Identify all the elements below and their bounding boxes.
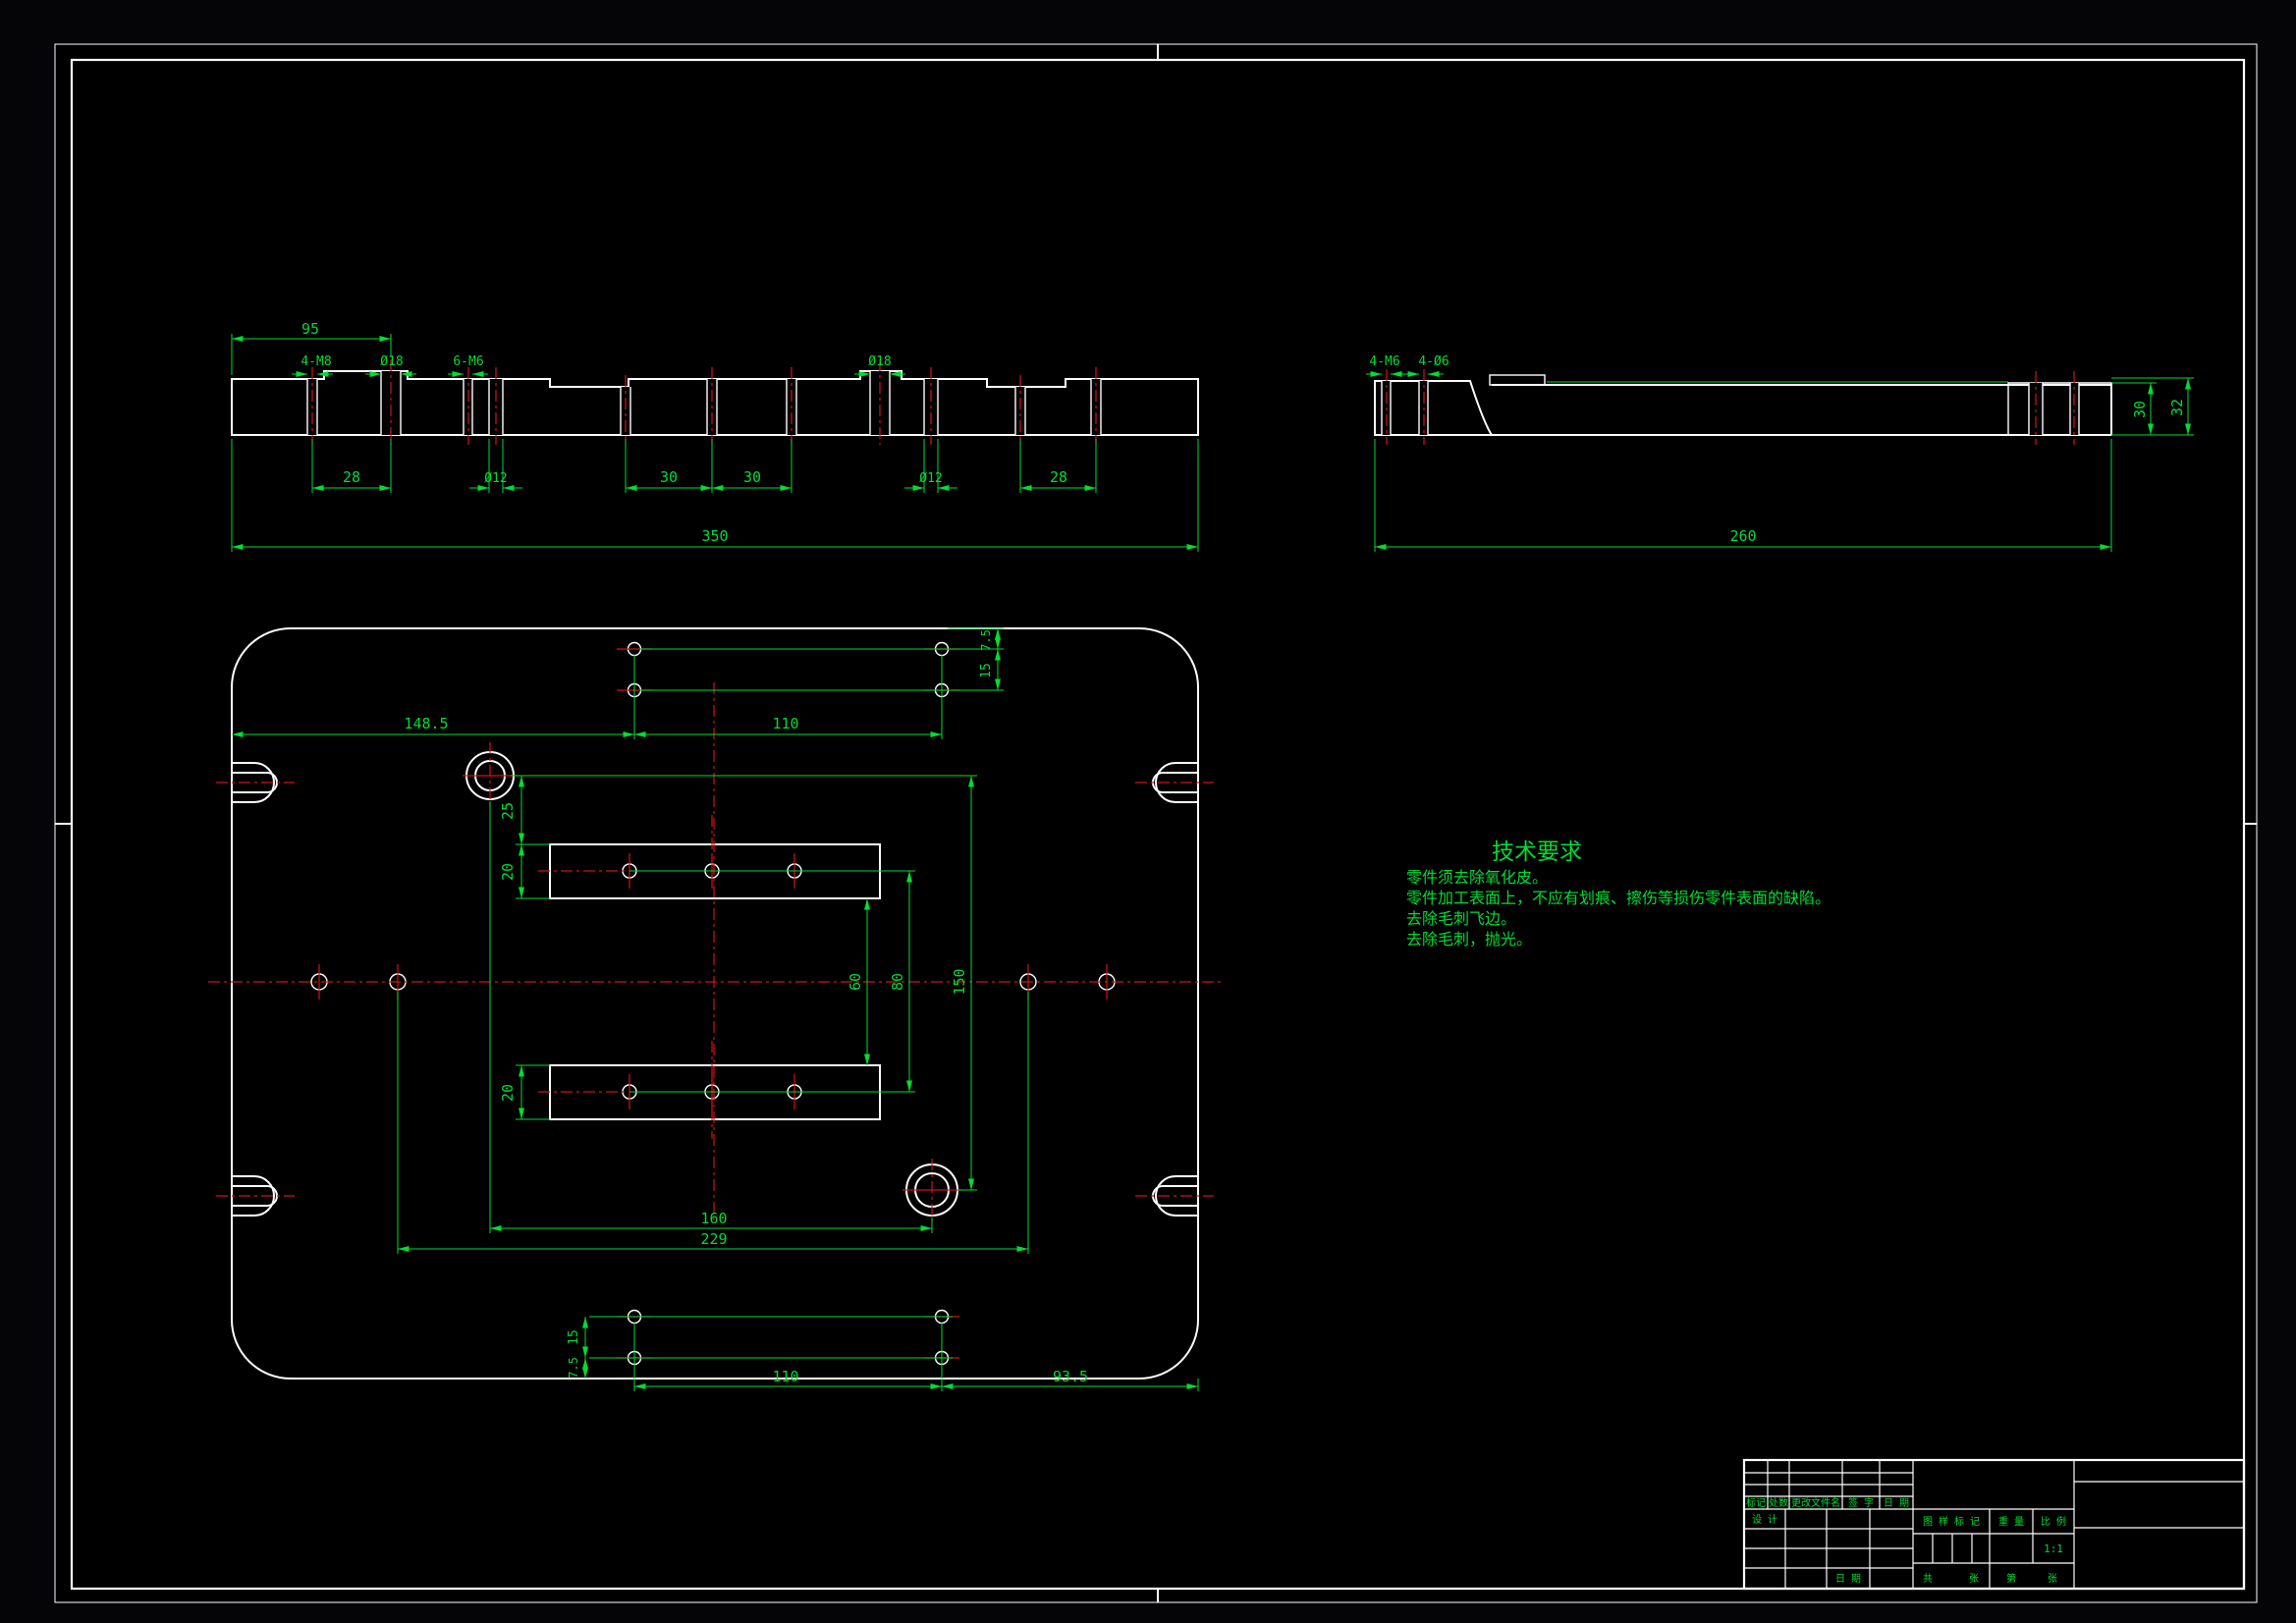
dimension-label: 150 [951, 968, 968, 995]
title-block-label: 更改文件名 [1791, 1496, 1840, 1509]
title-block-label: 设 计 [1752, 1513, 1777, 1526]
title-block-label: 张 [1969, 1573, 1979, 1585]
dimension-label: 110 [772, 715, 798, 732]
dimension-label: 25 [499, 802, 517, 820]
dimension-label: 7.5 [979, 629, 993, 651]
dimension-label: 148.5 [404, 715, 448, 732]
title-block-label: 重 量 [1998, 1515, 2024, 1528]
dimension-label: 6-M6 [453, 354, 483, 369]
dimension-label: 30 [2131, 401, 2149, 418]
title-block-label: 比 例 [2041, 1515, 2066, 1528]
dimension-label: 110 [772, 1368, 798, 1385]
title-block-label: 签 字 [1848, 1496, 1874, 1509]
title-block-label: 图 样 标 记 [1923, 1515, 1980, 1528]
tech-requirements-line: 零件加工表面上，不应有划痕、擦伤等损伤零件表面的缺陷。 [1406, 889, 1831, 907]
dimension-label: 30 [743, 468, 761, 486]
dimension-label: 350 [701, 527, 728, 545]
dimension-label: 15 [567, 1329, 581, 1345]
dimension-label: 20 [499, 1084, 517, 1102]
tech-requirements-line: 去除毛刺飞边。 [1406, 909, 1516, 928]
dimension-label: 15 [979, 663, 994, 678]
dimension-label: 93.5 [1053, 1368, 1088, 1385]
cad-application-canvas: 954-M8Ø186-M6Ø1828Ø123030Ø1228350 4-M64-… [0, 0, 2296, 1623]
dimension-label: Ø12 [484, 471, 507, 486]
dimension-label: 28 [343, 468, 360, 486]
tech-requirements-title: 技术要求 [1492, 839, 1582, 865]
title-block-label: 日 期 [1884, 1497, 1909, 1509]
dimension-label: 28 [1050, 468, 1067, 486]
title-block-label: 张 [2048, 1573, 2057, 1585]
dimension-label: Ø18 [868, 354, 891, 369]
title-block-label: 标记 [1746, 1497, 1766, 1509]
dimension-label: 32 [2168, 399, 2186, 416]
title-block-label: 共 [1923, 1573, 1933, 1585]
title-block-label: 处数 [1769, 1496, 1788, 1509]
dimension-label: 60 [847, 973, 864, 991]
title-block-label: 日 期 [1835, 1573, 1861, 1585]
dimension-label: 229 [700, 1230, 727, 1248]
dimension-label: 30 [660, 468, 678, 486]
tech-requirements-line: 零件须去除氧化皮。 [1406, 868, 1548, 887]
dimension-label: Ø12 [919, 471, 942, 486]
dimension-label: 4-Ø6 [1418, 354, 1449, 369]
dimension-label: Ø18 [380, 354, 403, 369]
dimension-label: 4-M8 [301, 354, 331, 369]
dimension-label: 260 [1729, 527, 1756, 545]
tech-requirements-line: 去除毛刺，抛光。 [1406, 930, 1532, 948]
title-block-label: 第 [2006, 1572, 2016, 1585]
sheet-outer-border [55, 44, 2257, 1602]
dimension-label: 20 [499, 863, 517, 881]
dimension-label: 7.5 [567, 1357, 580, 1379]
dimension-label: 80 [889, 973, 906, 991]
dimension-label: 4-M6 [1369, 354, 1399, 369]
title-block-label: 1:1 [2044, 1542, 2063, 1555]
dimension-label: 95 [301, 320, 319, 338]
dimension-label: 160 [700, 1210, 727, 1227]
drawing-canvas: 954-M8Ø186-M6Ø1828Ø123030Ø1228350 4-M64-… [0, 0, 2296, 1623]
